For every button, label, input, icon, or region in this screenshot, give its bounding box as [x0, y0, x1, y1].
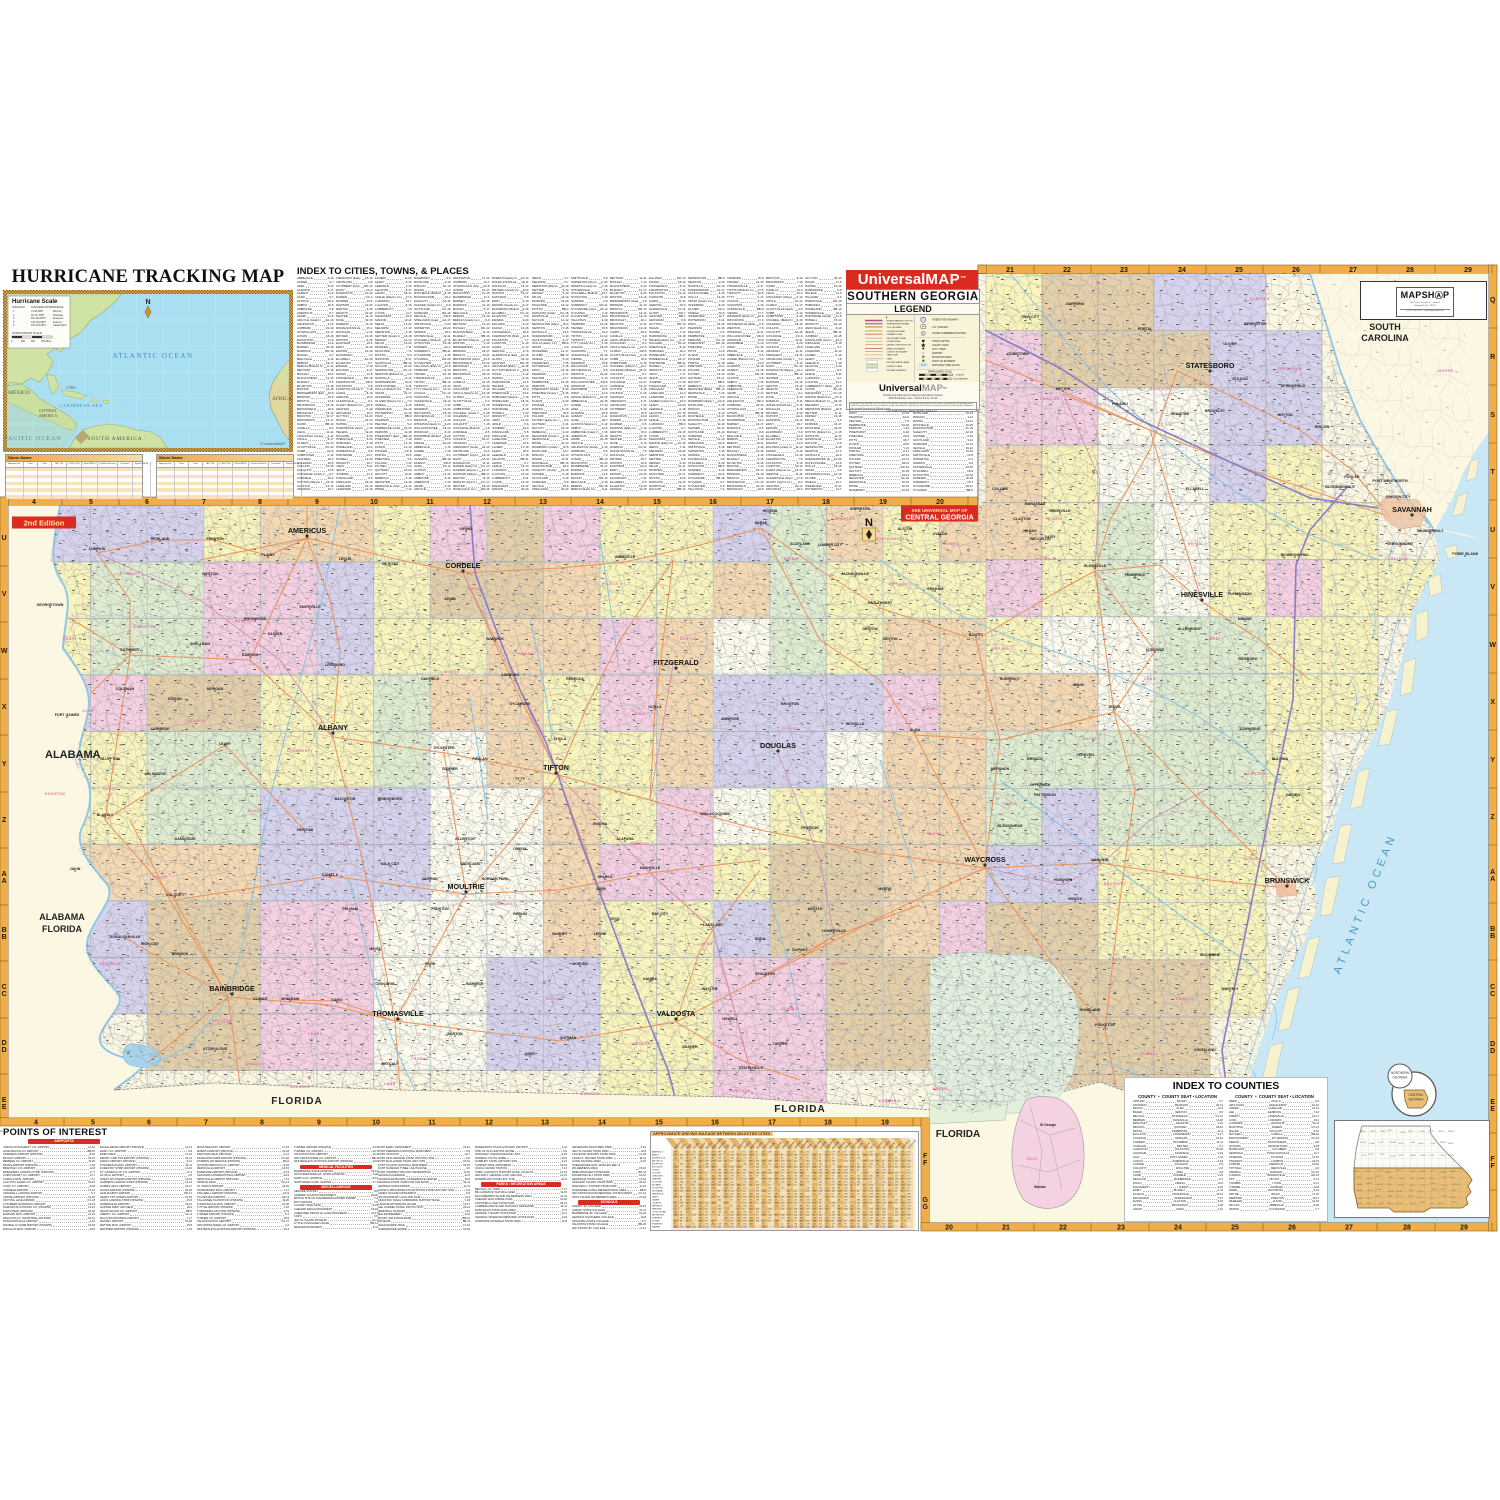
svg-text:10: 10: [370, 499, 378, 506]
svg-text:CHATHAM: CHATHAM: [1388, 557, 1408, 561]
svg-text:FLORIDA: FLORIDA: [271, 1096, 322, 1107]
svg-text:St George: St George: [1040, 1123, 1056, 1127]
svg-text:14: 14: [598, 1120, 606, 1127]
svg-text:GADSDEN: GADSDEN: [290, 1085, 311, 1089]
svg-text:E: E: [2, 1104, 7, 1111]
svg-text:X: X: [1490, 699, 1495, 706]
svg-text:BROOKLET: BROOKLET: [652, 1166, 664, 1168]
svg-text:E: E: [2, 1097, 7, 1104]
svg-text:FLORIDA: FLORIDA: [774, 1104, 825, 1115]
svg-text:COUNTY BOUNDARY: COUNTY BOUNDARY: [887, 350, 909, 353]
svg-text:CAROLINA: CAROLINA: [1361, 333, 1409, 343]
svg-text:HINESVILLE: HINESVILLE: [652, 1193, 664, 1195]
svg-text:DEXTER: DEXTER: [1376, 1184, 1382, 1186]
svg-text:MILLER: MILLER: [152, 875, 168, 879]
svg-text:GEORGIA: GEORGIA: [1409, 1098, 1425, 1102]
svg-text:TWINCI: TWINCI: [1441, 1155, 1447, 1157]
svg-text:MILITARY RESERVE: MILITARY RESERVE: [887, 369, 907, 372]
svg-text:McINTOSH: McINTOSH: [1244, 772, 1266, 776]
svg-text:A: A: [1490, 869, 1495, 876]
svg-text:21: 21: [1006, 267, 1014, 274]
svg-text:U.S. HIGHWAY: U.S. HIGHWAY: [932, 326, 949, 329]
svg-text:MADISON: MADISON: [580, 1092, 600, 1096]
svg-text:BRONWO: BRONWO: [1367, 1178, 1374, 1180]
svg-text:BAKER: BAKER: [933, 1087, 948, 1091]
svg-text:HENRY: HENRY: [63, 637, 77, 641]
svg-text:8: 8: [260, 1120, 264, 1127]
svg-text:FOLKST: FOLKST: [1441, 1185, 1447, 1187]
svg-text:2nd Edition: 2nd Edition: [24, 519, 65, 528]
svg-text:ALABAMA: ALABAMA: [45, 749, 101, 761]
svg-text:6: 6: [147, 1120, 151, 1127]
svg-text:G: G: [922, 1204, 928, 1211]
svg-text:WARE: WARE: [929, 832, 941, 836]
svg-text:23: 23: [1120, 267, 1128, 274]
svg-text:Z: Z: [1491, 814, 1496, 821]
svg-text:CRESCENT: CRESCENT: [652, 1175, 664, 1177]
svg-text:13: 13: [541, 1120, 549, 1127]
svg-text:D: D: [2, 1040, 7, 1047]
svg-text:CORDELE: CORDELE: [445, 561, 480, 570]
svg-text:29: 29: [1460, 1225, 1468, 1232]
svg-text:22: 22: [1063, 267, 1071, 274]
svg-text:SCREVE: SCREVE: [1451, 1202, 1457, 1204]
svg-text:27: 27: [1349, 267, 1357, 274]
svg-text:DAWSON: DAWSON: [652, 1177, 661, 1180]
svg-text:16: 16: [711, 1120, 719, 1127]
svg-text:74-95 MPH: 74-95 MPH: [31, 310, 43, 313]
svg-text:PINEHU: PINEHU: [1366, 1203, 1371, 1205]
svg-text:CATEGORY: CATEGORY: [12, 306, 26, 309]
svg-text:LOWNDES: LOWNDES: [630, 1042, 651, 1046]
svg-text:F: F: [923, 1153, 928, 1160]
svg-text:8: 8: [886, 316, 888, 320]
svg-text:PINEVI: PINEVI: [1380, 1154, 1385, 1156]
svg-text:FITZGERALD: FITZGERALD: [653, 658, 699, 667]
svg-text:BROXTO: BROXTO: [1375, 1176, 1382, 1178]
svg-text:28: 28: [1403, 1225, 1411, 1232]
svg-text:HAMILTON: HAMILTON: [729, 1089, 751, 1093]
svg-text:B: B: [2, 927, 7, 934]
svg-text:TERRELL: TERRELL: [235, 619, 254, 623]
svg-text:JEFF DAVIS: JEFF DAVIS: [888, 582, 913, 586]
svg-text:BAKER: BAKER: [248, 809, 263, 813]
svg-text:LEEFIE: LEEFIE: [1441, 1189, 1446, 1191]
svg-text:VALDOSTA: VALDOSTA: [657, 1009, 695, 1018]
svg-text:DUPONT: DUPONT: [1398, 1185, 1404, 1187]
svg-text:D: D: [1490, 1048, 1495, 1055]
svg-text:9: 9: [315, 499, 319, 506]
svg-text:INTERSTATE HIGHWAY: INTERSTATE HIGHWAY: [887, 323, 910, 326]
svg-text:G: G: [922, 1197, 928, 1204]
svg-text:COLLINS: COLLINS: [652, 1172, 661, 1174]
svg-text:5: 5: [91, 1120, 95, 1127]
svg-text:20: 20: [945, 1225, 953, 1232]
svg-text:MERSHON: MERSHON: [652, 1205, 663, 1207]
svg-text:4: 4: [34, 1120, 38, 1127]
svg-text:✈: ✈: [922, 351, 925, 355]
svg-text:12: 12: [483, 499, 491, 506]
svg-text:A: A: [2, 871, 7, 878]
svg-text:S: S: [1490, 412, 1495, 419]
svg-text:BULLOCH: BULLOCH: [1150, 387, 1170, 391]
svg-text:B: B: [1490, 926, 1495, 933]
svg-text:DOUGLAS: DOUGLAS: [652, 1180, 662, 1183]
svg-text:JASPER: JASPER: [1437, 369, 1454, 373]
svg-text:Z: Z: [2, 817, 7, 824]
svg-text:F: F: [1491, 1156, 1496, 1163]
svg-text:Moniac: Moniac: [1034, 1185, 1046, 1189]
svg-text:BEN HILL: BEN HILL: [680, 637, 700, 641]
svg-text:19: 19: [881, 1120, 889, 1127]
svg-text:10: 10: [372, 1120, 380, 1127]
svg-text:29: 29: [1464, 267, 1472, 274]
svg-text:EARLY: EARLY: [103, 787, 117, 791]
svg-text:LULATON: LULATON: [652, 1201, 662, 1204]
svg-text:COLQUITT: COLQUITT: [494, 902, 516, 906]
svg-text:20: 20: [936, 499, 944, 506]
svg-text:SECONDARY ROAD: SECONDARY ROAD: [887, 337, 907, 340]
svg-text:PUTNEY: PUTNEY: [652, 1220, 661, 1222]
svg-text:U: U: [1490, 527, 1495, 534]
svg-text:DOUGLAS: DOUGLAS: [760, 741, 796, 750]
svg-text:NASSAU: NASSAU: [1141, 1052, 1158, 1056]
svg-text:CALHOUN: CALHOUN: [185, 719, 206, 723]
svg-text:ALBANY: ALBANY: [318, 723, 348, 732]
svg-text:CHULA: CHULA: [652, 1168, 659, 1171]
svg-text:Q: Q: [1490, 297, 1496, 304]
svg-text:CITY, TOWN: CITY, TOWN: [932, 348, 946, 351]
svg-text:INCORPORATED AREA: INCORPORATED AREA: [887, 361, 910, 364]
svg-text:14: 14: [596, 499, 604, 506]
svg-text:GEORGIA: GEORGIA: [1393, 1076, 1409, 1080]
svg-text:BELLVI: BELLVI: [1388, 1130, 1393, 1132]
svg-text:25: 25: [1235, 267, 1243, 274]
svg-text:SOUTH: SOUTH: [1369, 322, 1401, 332]
svg-text:BRYAN: BRYAN: [1188, 542, 1202, 546]
svg-text:BACON: BACON: [923, 707, 938, 711]
svg-text:C: C: [1490, 991, 1495, 998]
svg-text:LESLIE: LESLIE: [1452, 1190, 1457, 1192]
svg-text:GLYNN: GLYNN: [1243, 857, 1257, 861]
svg-text:BAKER: BAKER: [1027, 1157, 1039, 1161]
svg-text:STATESBORO: STATESBORO: [1186, 361, 1235, 370]
svg-text:GROVANIA: GROVANIA: [652, 1189, 663, 1192]
svg-text:DOOLY: DOOLY: [458, 542, 472, 546]
svg-text:EFFINGHAM: EFFINGHAM: [1278, 367, 1303, 371]
svg-text:24: 24: [1174, 1225, 1182, 1232]
svg-text:SASSER: SASSER: [652, 1225, 661, 1228]
svg-text:PACIFIC OCEAN: PACIFIC OCEAN: [4, 436, 62, 442]
svg-text:AMBOY: AMBOY: [652, 1153, 660, 1156]
svg-text:COUNTY SEAT: COUNTY SEAT: [932, 344, 949, 347]
svg-text:TELFAIR: TELFAIR: [781, 557, 799, 561]
svg-text:INTERCHANGES / EXIT NO.: INTERCHANGES / EXIT NO.: [887, 319, 914, 322]
svg-text:MOUNTAIN PEAK: MOUNTAIN PEAK: [932, 356, 952, 359]
svg-text:COFFEE: COFFEE: [782, 727, 799, 731]
svg-text:DIVIDED HIGHWAY: DIVIDED HIGHWAY: [887, 330, 906, 333]
svg-text:FOREST / PARK: FOREST / PARK: [887, 365, 903, 368]
svg-text:16: 16: [709, 499, 717, 506]
svg-text:BELLVILLE: BELLVILLE: [652, 1160, 663, 1162]
svg-text:STATE BOUNDARY: STATE BOUNDARY: [887, 347, 906, 350]
svg-text:F: F: [923, 1160, 928, 1167]
svg-text:COOLID: COOLID: [1429, 1178, 1434, 1180]
svg-text:23: 23: [1117, 1225, 1125, 1232]
svg-text:5: 5: [89, 499, 93, 506]
svg-text:6: 6: [145, 499, 149, 506]
svg-text:MEXICO: MEXICO: [8, 390, 30, 396]
svg-text:RICEBO: RICEBO: [1419, 1202, 1425, 1204]
svg-text:© UniversalMAP: © UniversalMAP: [260, 442, 286, 446]
svg-text:BLUFFT: BLUFFT: [1400, 1132, 1405, 1134]
svg-text:BRIDGE: BRIDGE: [1356, 1177, 1361, 1179]
svg-text:INTERSTATE HIGHWAY: INTERSTATE HIGHWAY: [932, 319, 959, 322]
svg-text:APPLING: APPLING: [991, 647, 1010, 651]
svg-text:LONG: LONG: [1144, 677, 1156, 681]
svg-text:ATKINSON: ATKINSON: [749, 847, 771, 851]
svg-text:OTHER ROAD: OTHER ROAD: [887, 340, 901, 343]
svg-text:DAMAGE: DAMAGE: [53, 306, 64, 309]
svg-text:ALABAMA: ALABAMA: [39, 912, 85, 922]
svg-text:LEON: LEON: [384, 1082, 395, 1086]
svg-text:TIFTON: TIFTON: [543, 763, 569, 772]
svg-text:CLAY: CLAY: [83, 709, 94, 713]
svg-text:CHARLTON: CHARLTON: [1109, 957, 1132, 961]
svg-text:KINGSL: KINGSL: [1418, 1191, 1423, 1193]
svg-text:17: 17: [768, 1120, 776, 1127]
svg-text:TATTNALL: TATTNALL: [1034, 557, 1055, 561]
svg-text:BROOKS: BROOKS: [546, 997, 564, 1001]
svg-text:28: 28: [1406, 267, 1414, 274]
svg-text:AFRICA: AFRICA: [272, 396, 292, 402]
svg-text:IRWIN: IRWIN: [634, 712, 646, 716]
svg-text:MYSTIC: MYSTIC: [1396, 1196, 1401, 1198]
svg-text:FLORIDA: FLORIDA: [42, 924, 82, 934]
svg-text:CUBA: CUBA: [66, 386, 76, 390]
svg-text:OCHLOCKNEE: OCHLOCKNEE: [652, 1211, 667, 1213]
svg-text:WAYCROSS: WAYCROSS: [964, 855, 1005, 864]
svg-text:Hurricane Scale: Hurricane Scale: [12, 299, 58, 305]
svg-text:EVANS: EVANS: [1048, 517, 1062, 521]
svg-text:MONTGOMERY: MONTGOMERY: [875, 537, 905, 541]
svg-text:19: 19: [879, 499, 887, 506]
svg-text:EDISON: EDISON: [1409, 1185, 1414, 1187]
svg-text:E: E: [1490, 1106, 1495, 1113]
svg-text:MOULTRIE: MOULTRIE: [448, 882, 485, 891]
svg-text:HORTEN: HORTEN: [1396, 1191, 1402, 1193]
svg-text:COBB: COBB: [1410, 1178, 1414, 1180]
svg-text:APPROXIMATE SCALE: APPROXIMATE SCALE: [928, 370, 952, 373]
svg-text:BRANTLEY: BRANTLEY: [1104, 882, 1127, 886]
svg-text:F: F: [1491, 1163, 1496, 1170]
svg-text:E: E: [1490, 1099, 1495, 1106]
svg-text:DECATUR: DECATUR: [212, 1019, 232, 1023]
svg-text:BRUNSWICK: BRUNSWICK: [1265, 876, 1311, 885]
svg-text:RICEBORO: RICEBORO: [652, 1223, 663, 1225]
svg-text:PUTNEY: PUTNEY: [1390, 1156, 1396, 1158]
svg-text:MITCHELL: MITCHELL: [329, 842, 350, 846]
svg-text:3 KILOMETERS: 3 KILOMETERS: [953, 379, 969, 381]
svg-text:Catastrophic: Catastrophic: [53, 324, 67, 327]
svg-text:V: V: [2, 591, 7, 598]
svg-text:26: 26: [1288, 1225, 1296, 1232]
svg-text:PIERCE: PIERCE: [1002, 802, 1018, 806]
svg-text:COOK: COOK: [594, 902, 606, 906]
svg-text:PRIMARY ROAD: PRIMARY ROAD: [887, 333, 903, 336]
svg-text:750 Miles: 750 Miles: [41, 340, 52, 343]
svg-text:22: 22: [1059, 1225, 1067, 1232]
svg-text:25: 25: [1231, 1225, 1239, 1232]
svg-text:NICHOL: NICHOL: [1417, 1197, 1422, 1199]
svg-text:A: A: [2, 878, 7, 885]
svg-text:W: W: [1489, 642, 1496, 649]
svg-text:UNDER CONSTRUCTION: UNDER CONSTRUCTION: [887, 344, 912, 346]
svg-text:SEMINOLE: SEMINOLE: [99, 962, 121, 966]
svg-text:RISING: RISING: [1430, 1203, 1435, 1205]
svg-text:OCHLOC: OCHLOC: [1361, 1155, 1367, 1157]
svg-text:ATTAPULGUS: ATTAPULGUS: [652, 1156, 666, 1159]
svg-text:NORTHERN: NORTHERN: [1391, 1071, 1410, 1075]
svg-text:Y: Y: [2, 761, 7, 768]
svg-text:11: 11: [428, 1120, 436, 1127]
svg-text:9: 9: [317, 1120, 321, 1127]
svg-text:BLUFFTON: BLUFFTON: [652, 1163, 663, 1165]
svg-text:CAMDEN: CAMDEN: [1176, 997, 1194, 1001]
svg-text:POINT OF INTEREST: POINT OF INTEREST: [932, 360, 956, 363]
svg-text:BROOKL: BROOKL: [1408, 1131, 1414, 1133]
svg-text:WAYNE: WAYNE: [1083, 737, 1098, 741]
svg-text:SCREVEN: SCREVEN: [1250, 297, 1270, 301]
svg-text:CENTRAL GEORGIA: CENTRAL GEORGIA: [905, 515, 973, 522]
svg-text:B: B: [1490, 933, 1495, 940]
svg-text:PINEVIEW: PINEVIEW: [652, 1217, 662, 1219]
svg-text:CRISP: CRISP: [469, 587, 482, 591]
svg-text:17: 17: [766, 499, 774, 506]
svg-text:C: C: [2, 984, 7, 991]
svg-text:ELLENT: ELLENT: [1420, 1185, 1425, 1187]
svg-text:TIME ZONE: TIME ZONE: [887, 355, 899, 357]
svg-text:Y: Y: [1490, 757, 1495, 764]
svg-text:162-183 MPH: 162-183 MPH: [31, 324, 46, 327]
svg-text:RICEBO: RICEBO: [1398, 1155, 1404, 1157]
svg-text:TIFT: TIFT: [540, 787, 550, 791]
svg-text:13: 13: [539, 499, 547, 506]
svg-text:TOOMBS: TOOMBS: [941, 542, 959, 546]
svg-text:D: D: [1490, 1041, 1495, 1048]
svg-text:HINESVILLE: HINESVILLE: [1181, 590, 1224, 599]
svg-text:X: X: [2, 704, 7, 711]
svg-text:C: C: [2, 991, 7, 998]
svg-text:15: 15: [653, 499, 661, 506]
svg-text:D: D: [2, 1047, 7, 1054]
svg-text:T: T: [1491, 469, 1496, 476]
svg-text:OLIVER: OLIVER: [1441, 1196, 1446, 1198]
svg-text:SAVANNAH: SAVANNAH: [1392, 505, 1432, 514]
svg-text:12 16: 12 16: [921, 364, 926, 366]
svg-text:500: 500: [31, 340, 36, 343]
svg-text:HINESV: HINESV: [1398, 1143, 1403, 1145]
svg-text:4: 4: [32, 499, 36, 506]
svg-text:DOUGHERTY: DOUGHERTY: [287, 749, 313, 753]
svg-text:ECHOLS: ECHOLS: [781, 1007, 798, 1011]
svg-text:TOLL HIGHWAY: TOLL HIGHWAY: [887, 326, 903, 329]
svg-text:MERSHO: MERSHO: [1375, 1196, 1382, 1198]
svg-text:CENTRAL: CENTRAL: [1409, 1093, 1424, 1097]
svg-text:24: 24: [1178, 267, 1186, 274]
svg-text:N: N: [865, 517, 873, 529]
svg-text:SOUTH AMERICA: SOUTH AMERICA: [87, 436, 142, 442]
svg-text:A: A: [1490, 876, 1495, 883]
svg-text:15: 15: [655, 1120, 663, 1127]
svg-text:RANDOLPH: RANDOLPH: [133, 625, 156, 629]
svg-text:LANIER: LANIER: [652, 1198, 660, 1201]
svg-text:18: 18: [824, 1120, 832, 1127]
svg-text:Minimal: Minimal: [53, 310, 62, 313]
svg-text:THOMAS: THOMAS: [411, 1057, 429, 1061]
svg-text:CLINCH: CLINCH: [832, 962, 848, 966]
svg-text:REGIST: REGIST: [1410, 1203, 1415, 1205]
svg-text:V: V: [1490, 584, 1495, 591]
svg-text:21: 21: [1002, 1225, 1010, 1232]
svg-text:ATLANTIC OCEAN: ATLANTIC OCEAN: [112, 352, 193, 360]
svg-text:HOUSTON: HOUSTON: [45, 792, 65, 796]
svg-text:FLORIDA: FLORIDA: [936, 1129, 980, 1140]
svg-text:26: 26: [1292, 267, 1300, 274]
svg-text:AIRPORT: AIRPORT: [932, 352, 943, 355]
svg-text:LUMBER: LUMBER: [1357, 1198, 1363, 1200]
svg-text:CANDLER: CANDLER: [1040, 397, 1060, 401]
svg-text:N: N: [145, 299, 150, 306]
svg-text:FOLKST: FOLKST: [1378, 1142, 1384, 1144]
svg-text:THOMASVILLE: THOMASVILLE: [372, 1009, 424, 1018]
svg-text:AMERICUS: AMERICUS: [288, 526, 327, 535]
svg-text:BAINBRIDGE: BAINBRIDGE: [209, 984, 255, 993]
svg-text:7: 7: [204, 1120, 208, 1127]
svg-text:LANIER: LANIER: [697, 942, 713, 946]
svg-text:LIBERTY: LIBERTY: [1206, 637, 1224, 641]
svg-text:W: W: [1, 648, 8, 655]
svg-text:COLLIN: COLLIN: [1428, 1131, 1433, 1133]
svg-text:7: 7: [202, 499, 206, 506]
svg-text:WHEELER: WHEELER: [835, 517, 856, 521]
svg-text:ABBEVILLE: ABBEVILLE: [652, 1150, 663, 1153]
svg-text:APPROXIMATE SCALE: APPROXIMATE SCALE: [12, 331, 42, 335]
svg-text:FOLKSTON: FOLKSTON: [652, 1187, 663, 1189]
svg-text:250: 250: [21, 340, 26, 343]
svg-text:18: 18: [822, 499, 830, 506]
svg-text:HOBOKE: HOBOKE: [1388, 1191, 1394, 1193]
svg-text:C: C: [1490, 984, 1495, 991]
svg-text:2 MILES: 2 MILES: [956, 375, 965, 377]
svg-text:ELLABELL: ELLABELL: [652, 1183, 663, 1186]
svg-text:STATE CAPITAL: STATE CAPITAL: [932, 340, 950, 343]
svg-text:12: 12: [485, 1120, 493, 1127]
svg-text:TRAIL: TRAIL: [887, 358, 894, 361]
svg-text:PATTERSON: PATTERSON: [652, 1213, 664, 1216]
svg-text:LEE: LEE: [336, 637, 344, 641]
svg-text:DISTANCE (TIME ALONG: DISTANCE (TIME ALONG: [932, 364, 960, 367]
svg-text:GRADY: GRADY: [308, 1032, 323, 1036]
svg-text:U: U: [2, 535, 7, 542]
svg-text:SEE UNIVERSAL MAP OF: SEE UNIVERSAL MAP OF: [912, 508, 968, 513]
svg-text:WILCOX: WILCOX: [602, 582, 619, 586]
svg-text:COLUMBIA: COLUMBIA: [879, 1099, 901, 1103]
svg-text:COUNCI: COUNCI: [1441, 1177, 1447, 1179]
svg-text:MERSHO: MERSHO: [1440, 1142, 1447, 1144]
svg-text:BERRIEN: BERRIEN: [631, 842, 650, 846]
svg-text:CARIBBEAN SEA: CARIBBEAN SEA: [59, 403, 103, 408]
